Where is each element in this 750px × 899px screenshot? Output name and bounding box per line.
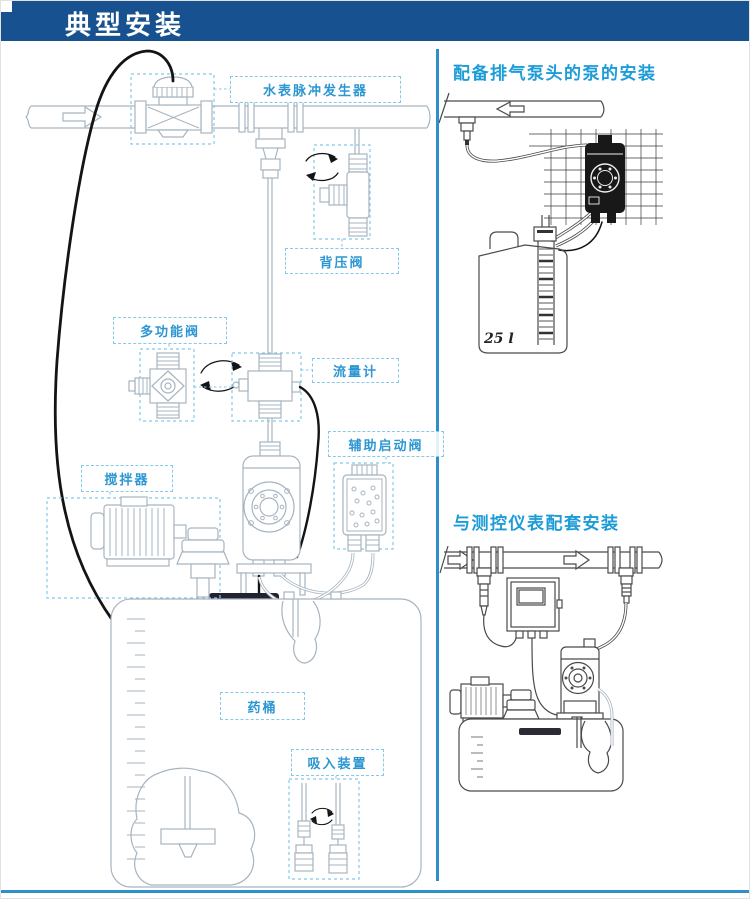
main-pipe — [26, 102, 430, 132]
page-header: 典型安装 — [1, 1, 750, 41]
back-pressure-valve-drawing — [306, 129, 370, 249]
label-agitator: 搅拌器 — [81, 465, 173, 492]
label-auxiliary-start-valve: 辅助启动阀 — [328, 431, 444, 457]
multifunction-valve-drawing — [129, 344, 242, 421]
rb-pump — [557, 639, 603, 727]
rt-pump — [585, 135, 625, 223]
label-multifunction-valve: 多功能阀 — [113, 317, 227, 344]
label-flow-meter: 流量计 — [312, 358, 399, 383]
label-suction-device: 吸入装置 — [291, 749, 384, 776]
can-capacity-label: 25 l — [484, 331, 514, 347]
header-corner-decoration — [1, 1, 12, 12]
section-title-degassing-pump: 配备排气泵头的泵的安装 — [453, 59, 657, 84]
footer-rule — [1, 890, 750, 893]
rb-agitator-motor — [450, 677, 539, 723]
page: 典型安装 配备排气泵头的泵的安装 与测控仪表配套安装 水表脉冲发生器 背压阀 多… — [0, 0, 750, 899]
rb-injection-valve — [590, 568, 633, 654]
water-meter — [131, 74, 230, 144]
page-title: 典型安装 — [65, 5, 185, 42]
chemical-tank-drawing — [111, 592, 421, 887]
rt-pipe — [439, 93, 604, 145]
vertical-divider — [436, 49, 439, 881]
auxiliary-start-valve-drawing — [334, 457, 393, 551]
tee-injection-fitting — [256, 128, 285, 354]
section-title-instrument-install: 与测控仪表配套安装 — [453, 509, 620, 534]
label-back-pressure-valve: 背压阀 — [285, 248, 399, 274]
label-water-meter-pulse-generator: 水表脉冲发生器 — [230, 76, 401, 103]
label-chemical-tank: 药桶 — [220, 692, 305, 720]
